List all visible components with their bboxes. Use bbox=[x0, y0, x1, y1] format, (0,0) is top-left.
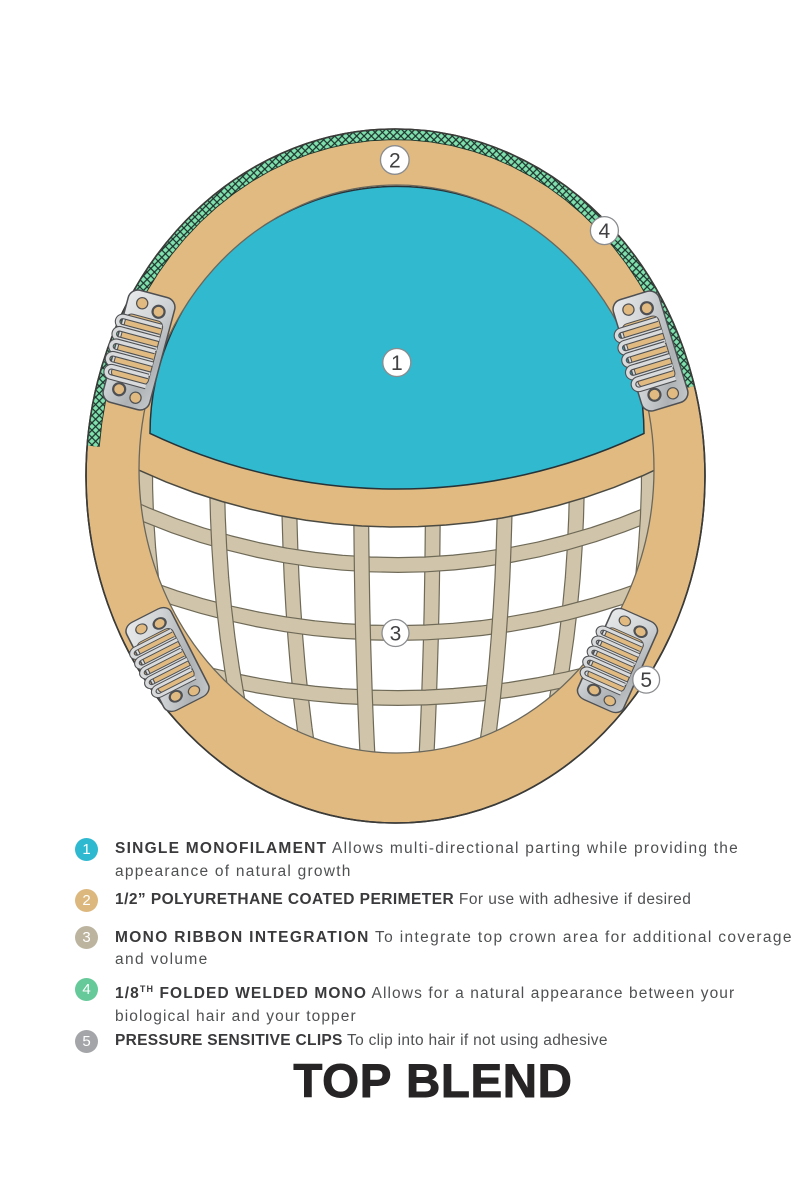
svg-text:3: 3 bbox=[390, 623, 402, 646]
svg-text:4: 4 bbox=[599, 220, 611, 243]
svg-text:2: 2 bbox=[389, 150, 401, 173]
svg-text:5: 5 bbox=[640, 669, 652, 692]
svg-text:1: 1 bbox=[391, 352, 403, 375]
